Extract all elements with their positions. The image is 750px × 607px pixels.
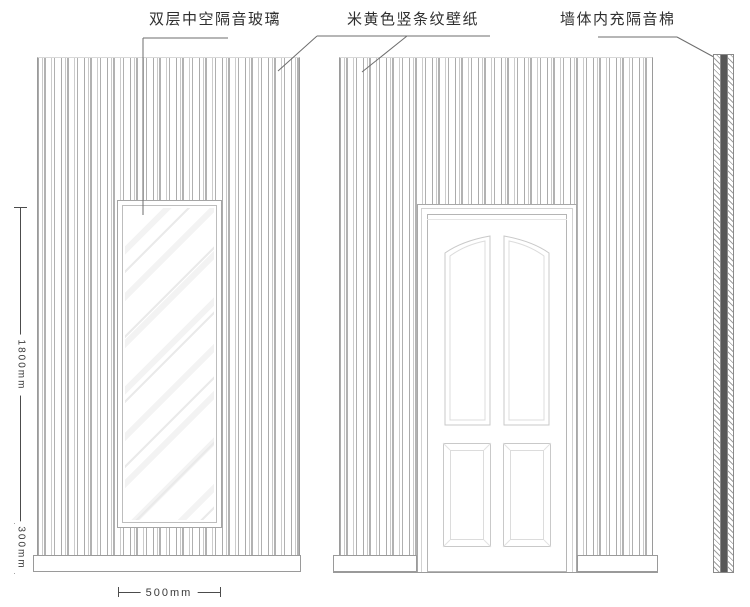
total-height-dimension: 1800mm (15, 335, 28, 396)
insulation-label: 墙体内充隔音棉 (560, 11, 676, 29)
window (117, 200, 222, 528)
floor-line (333, 572, 658, 573)
wall-section (713, 54, 734, 573)
wall-hatch-right (728, 55, 734, 572)
door-opening (417, 204, 577, 572)
wallpaper-label: 米黄色竖条纹壁纸 (347, 11, 479, 29)
dimension-tick-left (118, 587, 119, 597)
dimension-tick-right (220, 587, 221, 597)
dimension-tick-top (14, 207, 27, 208)
window-width-dimension: 500mm (141, 586, 198, 600)
window-frame (122, 205, 217, 523)
elevation-drawing: 双层中空隔音玻璃 米黄色竖条纹壁纸 墙体内充隔音棉 (0, 0, 750, 607)
baseboard-door-left (333, 555, 417, 572)
glass-label: 双层中空隔音玻璃 (149, 11, 281, 29)
window-glass (125, 208, 214, 520)
base-height-dimension: 300mm (15, 521, 28, 574)
insulation-fill (720, 55, 728, 572)
baseboard-door-right (577, 555, 658, 572)
baseboard-left-panel (33, 555, 301, 572)
